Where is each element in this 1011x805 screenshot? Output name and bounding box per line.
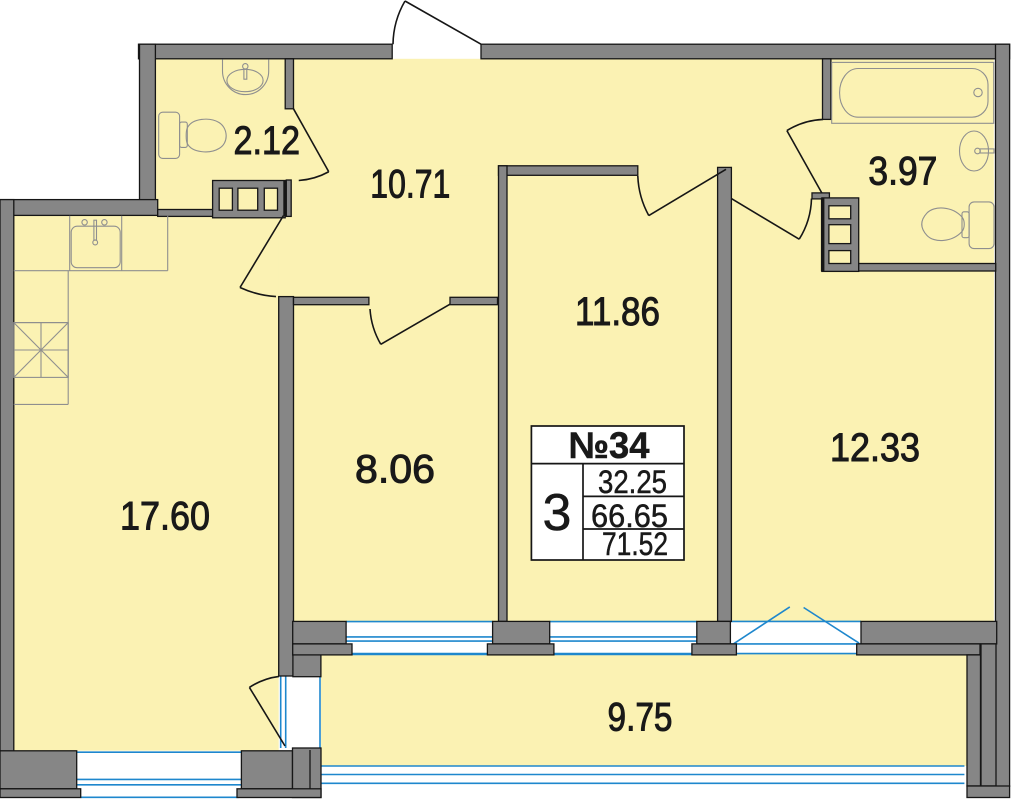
svg-text:8.06: 8.06 [355,448,435,492]
svg-text:2.12: 2.12 [234,119,301,163]
svg-text:3: 3 [543,484,572,542]
svg-text:11.86: 11.86 [575,290,660,334]
svg-text:10.71: 10.71 [370,163,450,207]
svg-text:71.52: 71.52 [602,526,668,562]
svg-text:№34: №34 [569,425,650,466]
svg-text:9.75: 9.75 [608,696,673,740]
svg-text:17.60: 17.60 [120,495,210,539]
svg-text:32.25: 32.25 [598,464,667,500]
svg-text:12.33: 12.33 [830,426,920,470]
svg-text:3.97: 3.97 [868,149,937,193]
